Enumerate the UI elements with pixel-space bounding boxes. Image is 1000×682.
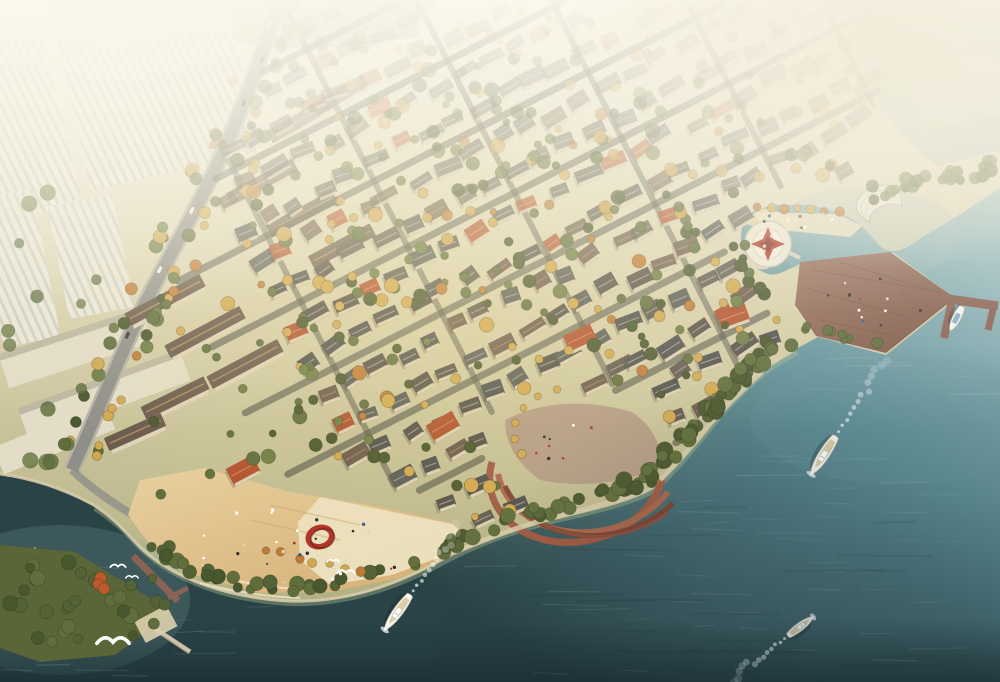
tree [148,618,159,629]
tree [19,585,30,596]
aerial-rendering-canvas [0,0,1000,682]
boat-wake [415,584,418,587]
tree [288,586,299,597]
tree [117,605,130,618]
tree [125,580,136,591]
tree [313,579,327,593]
tree [73,634,82,643]
tree [40,605,54,619]
tree [31,632,44,645]
ripple [75,670,130,671]
boat-wake [408,595,410,597]
atmosphere-haze [0,0,1000,682]
tree [128,631,138,641]
ripple [37,665,70,666]
ripple [201,632,236,633]
tree [61,619,76,634]
tree [113,590,127,604]
ripple [247,606,273,607]
person [283,581,285,583]
tree [3,596,18,611]
tree [70,595,81,606]
tree [233,583,243,593]
tree [46,636,57,647]
tree [98,583,109,594]
tree [159,599,171,611]
boat-wake [412,589,415,592]
aerial-rendering-stage [0,0,1000,682]
tree [23,453,39,469]
